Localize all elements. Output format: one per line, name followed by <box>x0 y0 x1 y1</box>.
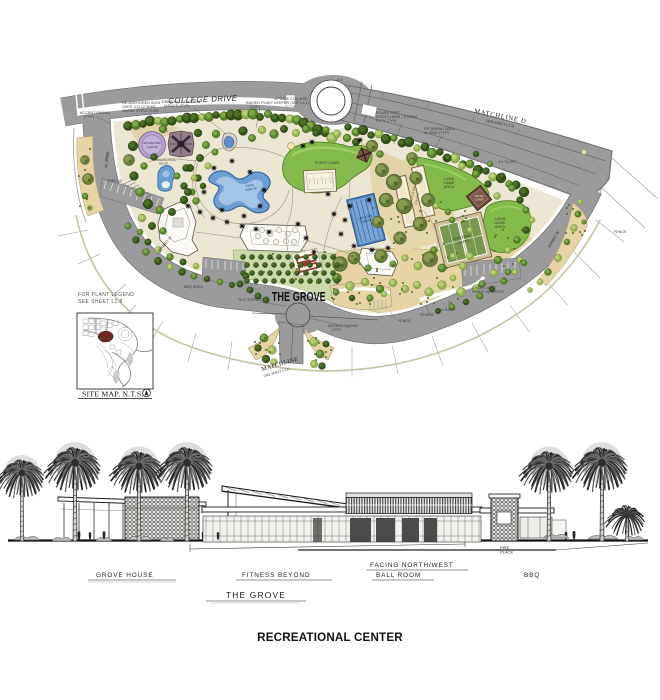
svg-text:GROVE HOUSE: GROVE HOUSE <box>96 572 153 579</box>
svg-text:EVENT LAWN: EVENT LAWN <box>315 161 339 165</box>
svg-text:FOR PLANT LEGEND: FOR PLANT LEGEND <box>78 292 134 298</box>
svg-text:SITE MAP, N.T.S.: SITE MAP, N.T.S. <box>82 390 144 399</box>
svg-text:(TYP): (TYP) <box>250 105 260 109</box>
svg-text:4:1 SLOPE: 4:1 SLOPE <box>498 160 517 164</box>
svg-text:TILE TERRACE: TILE TERRACE <box>238 298 265 302</box>
svg-text:BBQ AREA: BBQ AREA <box>184 285 203 289</box>
svg-text:AREA: AREA <box>495 225 506 229</box>
svg-text:FENCE: FENCE <box>398 319 411 323</box>
svg-text:ALIGNS (TYP): ALIGNS (TYP) <box>424 131 449 135</box>
svg-text:SEE SHEET L1.8: SEE SHEET L1.8 <box>78 299 123 305</box>
svg-text:1,100 SF: 1,100 SF <box>146 145 158 149</box>
svg-text:BBQ: BBQ <box>524 572 540 579</box>
svg-text:(TYP): (TYP) <box>84 115 94 119</box>
svg-text:(TYP): (TYP) <box>331 328 341 332</box>
svg-text:COVER: COVER <box>475 198 484 201</box>
svg-text:STAIRS: STAIRS <box>420 313 434 317</box>
svg-text:600 SF: 600 SF <box>159 162 168 166</box>
svg-text:THE GROVE: THE GROVE <box>226 590 286 600</box>
svg-text:(ADULT) (TYP): (ADULT) (TYP) <box>164 104 190 108</box>
svg-text:PLACE: PLACE <box>500 550 513 555</box>
svg-text:FENCE W/ GATES: FENCE W/ GATES <box>472 290 504 294</box>
svg-text:FACING NORTH/WEST: FACING NORTH/WEST <box>370 562 454 569</box>
svg-text:BALL ROOM: BALL ROOM <box>376 572 421 579</box>
svg-text:THE GROVE: THE GROVE <box>272 291 326 305</box>
svg-text:RECREATIONAL CENTER: RECREATIONAL CENTER <box>257 631 403 644</box>
svg-text:FITNESS BEYOND: FITNESS BEYOND <box>242 572 310 579</box>
svg-text:KEEPER (SHT L1.1): KEEPER (SHT L1.1) <box>274 101 309 105</box>
svg-text:FENCE: FENCE <box>614 230 627 234</box>
svg-text:PATH (TYP): PATH (TYP) <box>376 119 396 123</box>
svg-text:SHADE STRUCTURE: SHADE STRUCTURE <box>122 109 160 113</box>
svg-text:ADA RAMP: ADA RAMP <box>436 308 456 312</box>
svg-text:AREA: AREA <box>444 185 455 189</box>
svg-text:TRELLIS: TRELLIS <box>107 179 123 183</box>
